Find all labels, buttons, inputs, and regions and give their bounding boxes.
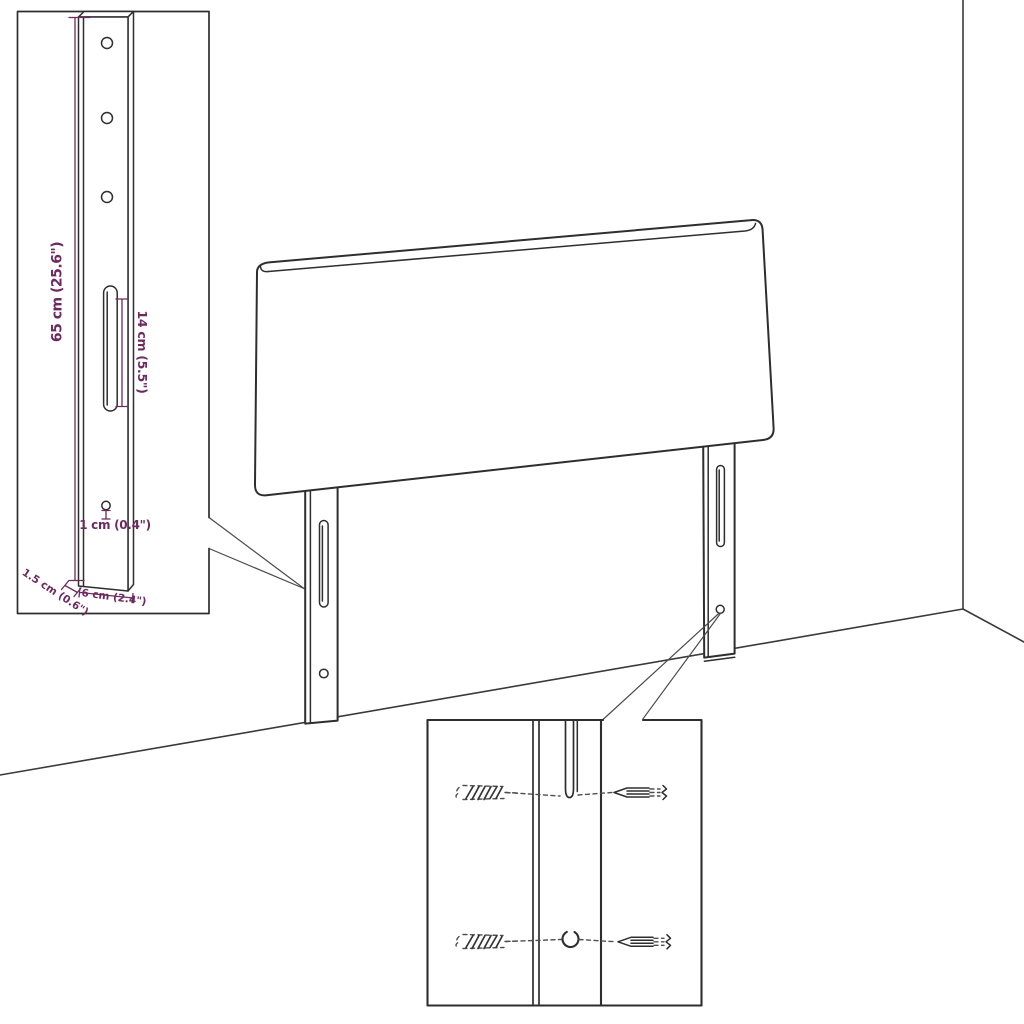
callout-line: [209, 549, 304, 589]
left-leg-mounting-hole: [320, 669, 329, 678]
right-leg: [703, 440, 735, 661]
bracket-top-face: [79, 12, 134, 18]
slot-dimension-label: 14 cm (5.5"): [135, 310, 150, 393]
bracket-slot: [104, 286, 118, 411]
callout-wedge-left: [209, 518, 304, 589]
left-leg: [305, 478, 337, 724]
callout-line: [643, 613, 721, 719]
left-leg-slot: [320, 521, 329, 608]
headboard-assembly-diagram: 65 cm (25.6") 14 cm (5.5") 1 cm (0.4") 1…: [0, 0, 1024, 1024]
bracket-side-face: [128, 12, 134, 592]
bracket-drawing: [79, 12, 134, 592]
panel-outline: [255, 220, 774, 495]
right-leg-slot: [717, 466, 725, 547]
callout-line: [209, 518, 304, 589]
bracket-hole: [102, 113, 113, 124]
headboard-panel: [255, 220, 774, 495]
hole-dimension-label: 1 cm (0.4"): [79, 518, 151, 532]
height-dimension-label: 65 cm (25.6"): [50, 242, 66, 342]
bracket-hole: [102, 38, 113, 49]
mounting-detail-inset: [428, 720, 702, 1006]
callout-line: [603, 613, 719, 720]
floor-wall-line-right: [963, 609, 1024, 642]
bracket-hole: [102, 192, 113, 203]
bracket-small-hole: [102, 501, 110, 509]
inset-box: [428, 720, 702, 1006]
right-leg-mounting-hole: [716, 605, 724, 613]
